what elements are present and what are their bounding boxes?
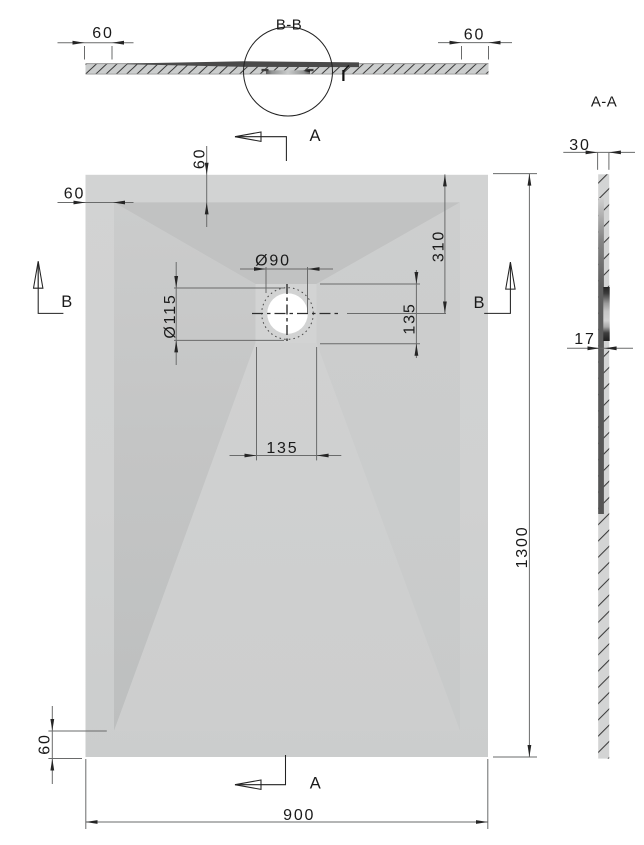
svg-text:Ø90: Ø90 <box>255 253 291 270</box>
svg-text:60: 60 <box>464 27 485 44</box>
svg-text:60: 60 <box>37 733 54 754</box>
svg-text:A: A <box>310 775 322 793</box>
svg-text:60: 60 <box>192 148 209 169</box>
svg-text:A: A <box>310 127 322 145</box>
svg-text:B: B <box>473 294 485 312</box>
svg-text:900: 900 <box>283 807 315 824</box>
svg-text:17: 17 <box>574 331 595 348</box>
svg-text:A-A: A-A <box>591 93 617 110</box>
svg-text:30: 30 <box>569 137 590 154</box>
svg-text:310: 310 <box>431 230 448 262</box>
svg-text:B: B <box>61 293 73 311</box>
svg-text:Ø115: Ø115 <box>162 293 179 338</box>
svg-text:135: 135 <box>266 440 298 457</box>
svg-text:B-B: B-B <box>276 17 302 34</box>
svg-text:60: 60 <box>64 186 85 203</box>
svg-text:135: 135 <box>402 302 419 334</box>
svg-text:60: 60 <box>92 25 113 42</box>
svg-text:1300: 1300 <box>514 526 531 569</box>
